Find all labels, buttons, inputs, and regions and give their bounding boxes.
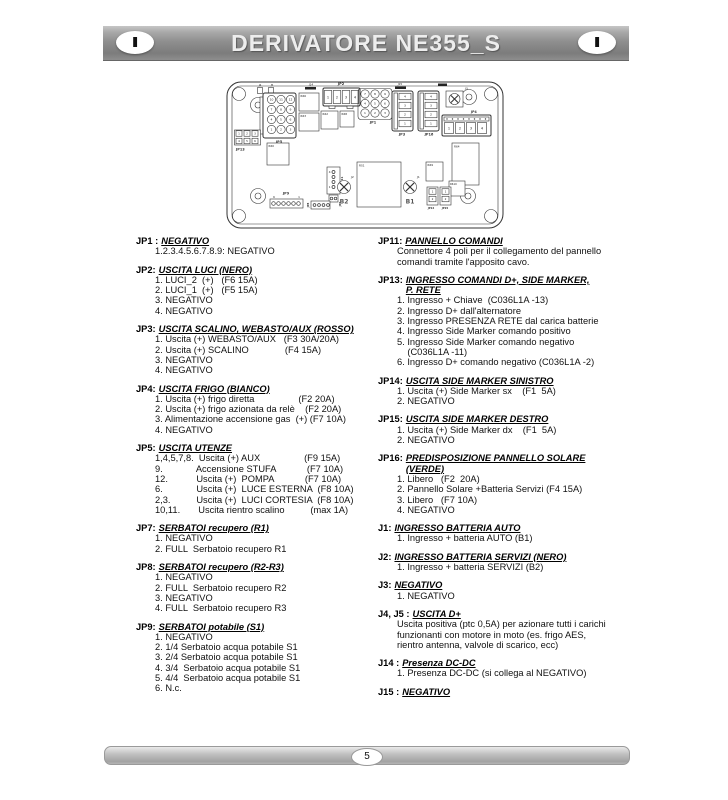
pin-list: 1. Presenza DC-DC (si collega al NEGATIV… <box>378 668 630 678</box>
pin-line: 5. Ingresso Side Marker comando negativo <box>378 337 630 347</box>
connector-title: USCITA SIDE MARKER DESTRO <box>406 414 549 424</box>
pin-line: 9. Accensione STUFA (F7 10A) <box>136 464 378 474</box>
relay-r60: R60 <box>267 143 289 165</box>
svg-text:JP4: JP4 <box>470 110 478 114</box>
pin-line: 3. Libero (F7 10A) <box>378 495 630 505</box>
svg-text:R610: R610 <box>450 182 457 186</box>
svg-text:9: 9 <box>384 92 386 96</box>
connector-id: JP1 : <box>136 236 158 246</box>
pin-line: 4. Ingresso Side Marker comando positivo <box>378 326 630 336</box>
footer-bar: 5 <box>104 746 630 765</box>
section-heading: JP2:USCITA LUCI (NERO) <box>136 265 378 275</box>
connector-section: JP7:SERBATOI recupero (R1) 1. NEGATIVO2.… <box>136 523 378 554</box>
svg-text:1: 1 <box>329 185 331 189</box>
pin-line: 2. Pannello Solare +Batteria Servizi (F4… <box>378 484 630 494</box>
connector-title-line: USCITA SIDE MARKER DESTRO <box>406 414 549 424</box>
svg-text:5: 5 <box>280 118 282 122</box>
section-heading: J1:INGRESSO BATTERIA AUTO <box>378 523 630 533</box>
svg-text:J3: J3 <box>464 87 468 91</box>
section-heading: JP14:USCITA SIDE MARKER SINISTRO <box>378 376 630 386</box>
section-heading: JP7:SERBATOI recupero (R1) <box>136 523 378 533</box>
pin-line: 6. Uscita (+) LUCE ESTERNA (F8 10A) <box>136 484 378 494</box>
svg-text:1: 1 <box>432 190 434 194</box>
svg-text:J15: J15 <box>397 82 403 86</box>
pin-line: 3. NEGATIVO <box>136 295 378 305</box>
svg-text:8: 8 <box>374 92 376 96</box>
connector-title: SERBATOI recupero (R2-R3) <box>159 562 284 572</box>
section-heading: J15 :NEGATIVO <box>378 687 630 697</box>
pin-line: 4. NEGATIVO <box>378 505 630 515</box>
relay-r68: R68 <box>340 111 354 127</box>
svg-text:R62: R62 <box>323 112 329 116</box>
pin-line: 1. NEGATIVO <box>136 533 378 543</box>
section-heading: JP5:USCITA UTENZE <box>136 443 378 453</box>
svg-text:6: 6 <box>273 195 275 199</box>
header-bar: I DERIVATORE NE355_S I <box>103 26 629 61</box>
svg-text:4: 4 <box>430 95 432 99</box>
svg-text:2: 2 <box>404 113 406 117</box>
svg-text:3: 3 <box>404 104 406 108</box>
pin-line: 4. 3/4 Serbatoio acqua potabile S1 <box>136 663 378 673</box>
svg-text:J14: J14 <box>308 83 314 87</box>
pin-line: 5. 4/4 Serbatoio acqua potabile S1 <box>136 673 378 683</box>
pin-line: 3. Ingresso PRESENZA RETE dal carica bat… <box>378 316 630 326</box>
svg-text:7: 7 <box>364 92 366 96</box>
svg-text:6: 6 <box>384 102 386 106</box>
pin-line: 4. NEGATIVO <box>136 306 378 316</box>
pin-line: 4. NEGATIVO <box>136 425 378 435</box>
pin-line: 3. Alimentazione accensione gas (+) (F7 … <box>136 414 378 424</box>
jp5-connector: 101112789456123 JP5 <box>260 93 296 144</box>
svg-text:5: 5 <box>374 102 376 106</box>
svg-text:J2: J2 <box>350 175 354 179</box>
section-heading: J3:NEGATIVO <box>378 580 630 590</box>
connector-id: J4, J5 : <box>378 609 410 619</box>
connector-section: J2:INGRESSO BATTERIA SERVIZI (NERO) 1. I… <box>378 552 630 573</box>
pin-line: 1.2.3.4.5.6.7.8.9: NEGATIVO <box>136 246 378 256</box>
pin-line: 3. 2/4 Serbatoio acqua potabile S1 <box>136 652 378 662</box>
svg-text:10: 10 <box>270 98 274 102</box>
pin-line: 6. Ingresso D+ comando negativo (C036L1A… <box>378 357 630 367</box>
section-heading: J14 :Presenza DC-DC <box>378 658 630 668</box>
svg-text:2: 2 <box>459 126 461 130</box>
relay-r69: R69 <box>426 162 443 181</box>
section-heading: JP1 :NEGATIVO <box>136 236 378 246</box>
page-number: 5 <box>364 751 370 762</box>
connector-title-line: INGRESSO BATTERIA SERVIZI (NERO) <box>394 552 566 562</box>
svg-text:R64: R64 <box>454 145 460 149</box>
connector-section: JP16:PREDISPOSIZIONE PANNELLO SOLARE(VER… <box>378 453 630 515</box>
section-heading: JP15:USCITA SIDE MARKER DESTRO <box>378 414 630 424</box>
svg-text:1: 1 <box>298 195 300 199</box>
pin-list: 1. Uscita (+) Side Marker sx (F1 5A)2. N… <box>378 386 630 407</box>
svg-text:1: 1 <box>327 95 329 99</box>
section-heading: JP3:USCITA SCALINO, WEBASTO/AUX (ROSSO) <box>136 324 378 334</box>
pin-list: 1. Uscita (+) WEBASTO/AUX (F3 30A/20A)2.… <box>136 334 378 375</box>
connector-title: USCITA SIDE MARKER SINISTRO <box>406 376 554 386</box>
pin-line: (C036L1A -11) <box>378 347 630 357</box>
pin-line: 12. Uscita (+) POMPA (F7 10A) <box>136 474 378 484</box>
svg-text:2: 2 <box>280 128 282 132</box>
connector-title-line: (VERDE) <box>406 464 586 474</box>
pin-list: 1. Ingresso + Chiave (C036L1A -13)2. Ing… <box>378 295 630 367</box>
connector-title: NEGATIVO <box>161 236 209 246</box>
connector-title: NEGATIVO <box>394 580 442 590</box>
svg-text:3: 3 <box>345 95 347 99</box>
connector-title-line: USCITA UTENZE <box>159 443 232 453</box>
relay-rs1: RS1 <box>357 162 401 207</box>
pin-list: 1. NEGATIVO <box>378 591 630 601</box>
pin-list: 1. Libero (F2 20A)2. Pannello Solare +Ba… <box>378 474 630 515</box>
svg-text:J5: J5 <box>270 83 274 87</box>
svg-text:6: 6 <box>254 139 256 143</box>
connector-title-line: NEGATIVO <box>161 236 209 246</box>
section-heading: JP8:SERBATOI recupero (R2-R3) <box>136 562 378 572</box>
svg-text:2: 2 <box>374 111 376 115</box>
svg-text:B1: B1 <box>406 199 415 206</box>
jp3-connector: 4321 JP3 <box>392 91 413 137</box>
pin-list: 1. NEGATIVO2. FULL Serbatoio recupero R1 <box>136 533 378 554</box>
document-page: I DERIVATORE NE355_S I J4 J5 <box>0 0 728 800</box>
connector-section: JP11:PANNELLO COMANDI Connettore 4 poli … <box>378 236 630 267</box>
connector-title: INGRESSO BATTERIA SERVIZI (NERO) <box>394 552 566 562</box>
pin-line: 1. Ingresso + Chiave (C036L1A -13) <box>378 295 630 305</box>
svg-text:R66: R66 <box>301 94 307 98</box>
pin-line: 2. 1/4 Serbatoio acqua potabile S1 <box>136 642 378 652</box>
connector-section: JP8:SERBATOI recupero (R2-R3) 1. NEGATIV… <box>136 562 378 613</box>
connector-section: JP1 :NEGATIVO 1.2.3.4.5.6.7.8.9: NEGATIV… <box>136 236 378 257</box>
connector-title: SERBATOI recupero (R1) <box>159 523 269 533</box>
pin-line: 1. Ingresso + batteria SERVIZI (B2) <box>378 562 630 572</box>
svg-text:2: 2 <box>246 132 248 136</box>
connector-title-line: Presenza DC-DC <box>402 658 475 668</box>
pin-line: 4. FULL Serbatoio recupero R3 <box>136 603 378 613</box>
pin-line: 1. Uscita (+) Side Marker dx (F1 5A) <box>378 425 630 435</box>
pin-line: 2. Uscita (+) SCALINO (F4 15A) <box>136 345 378 355</box>
relay-r66: R66 <box>299 93 319 111</box>
connector-id: JP13: <box>378 275 403 285</box>
connector-title: USCITA FRIGO (BIANCO) <box>159 384 270 394</box>
connector-section: J4, J5 :USCITA D+ Uscita positiva (ptc 0… <box>378 609 630 650</box>
svg-text:R69: R69 <box>428 163 434 167</box>
connector-id: J3: <box>378 580 391 590</box>
jp16-connector: 4321 JP16 <box>418 91 439 137</box>
pin-line: 2. NEGATIVO <box>378 396 630 406</box>
connector-section: JP13:INGRESSO COMANDI D+, SIDE MARKER,P.… <box>378 275 630 368</box>
svg-text:JP3: JP3 <box>398 133 406 137</box>
connector-id: J14 : <box>378 658 399 668</box>
svg-text:R60: R60 <box>269 144 275 148</box>
connector-title: INGRESSO BATTERIA AUTO <box>394 523 520 533</box>
pin-list: 1. NEGATIVO2. FULL Serbatoio recupero R2… <box>136 572 378 613</box>
pin-line: 1. Uscita (+) frigo diretta (F2 20A) <box>136 394 378 404</box>
svg-text:2: 2 <box>336 95 338 99</box>
pin-line: 1. Uscita (+) Side Marker sx (F1 5A) <box>378 386 630 396</box>
svg-text:1: 1 <box>448 126 450 130</box>
language-badge-right-label: I <box>593 34 601 51</box>
section-heading: J4, J5 :USCITA D+ <box>378 609 630 619</box>
section-heading: JP16:PREDISPOSIZIONE PANNELLO SOLARE(VER… <box>378 453 630 474</box>
connector-title: Presenza DC-DC <box>402 658 475 668</box>
svg-text:1: 1 <box>271 128 273 132</box>
section-heading: JP13:INGRESSO COMANDI D+, SIDE MARKER,P.… <box>378 275 630 296</box>
connector-title: PREDISPOSIZIONE PANNELLO SOLARE(VERDE) <box>406 453 586 474</box>
svg-text:JP15: JP15 <box>441 206 449 210</box>
pin-line: funzionanti con motore in moto (es. frig… <box>378 630 630 640</box>
pin-line: 1. Libero (F2 20A) <box>378 474 630 484</box>
pin-line: 1. Presenza DC-DC (si collega al NEGATIV… <box>378 668 630 678</box>
connector-section: JP15:USCITA SIDE MARKER DESTRO 1. Uscita… <box>378 414 630 445</box>
connector-title: USCITA D+ <box>413 609 461 619</box>
pin-line: 1. LUCI_2 (+) (F6 15A) <box>136 275 378 285</box>
connector-id: JP5: <box>136 443 156 453</box>
svg-text:3: 3 <box>384 111 386 115</box>
pin-list: 1. Uscita (+) Side Marker dx (F1 5A)2. N… <box>378 425 630 446</box>
svg-text:8: 8 <box>280 108 282 112</box>
pin-list: 1. Ingresso + batteria SERVIZI (B2) <box>378 562 630 572</box>
svg-text:B2: B2 <box>340 199 349 206</box>
svg-text:3: 3 <box>470 126 472 130</box>
pin-list: Uscita positiva (ptc 0,5A) per azionare … <box>378 619 630 650</box>
svg-text:RS1: RS1 <box>359 164 365 168</box>
pin-line: 2. LUCI_1 (+) (F5 15A) <box>136 285 378 295</box>
pin-line: 1. NEGATIVO <box>136 572 378 582</box>
svg-text:4: 4 <box>364 102 366 106</box>
pin-line: 2,3. Uscita (+) LUCI CORTESIA (F8 10A) <box>136 495 378 505</box>
svg-text:2: 2 <box>445 197 447 201</box>
connector-title: NEGATIVO <box>402 687 450 697</box>
svg-text:JP8: JP8 <box>306 202 310 208</box>
svg-text:2: 2 <box>430 113 432 117</box>
connector-section: JP4:USCITA FRIGO (BIANCO) 1. Uscita (+) … <box>136 384 378 435</box>
svg-text:1: 1 <box>404 122 406 126</box>
connector-section: JP14:USCITA SIDE MARKER SINISTRO 1. Usci… <box>378 376 630 407</box>
connector-id: JP7: <box>136 523 156 533</box>
svg-text:R63: R63 <box>301 114 307 118</box>
connector-id: J15 : <box>378 687 399 697</box>
connector-id: JP14: <box>378 376 403 386</box>
connector-title-line: INGRESSO BATTERIA AUTO <box>394 523 520 533</box>
connector-title: SERBATOI potabile (S1) <box>159 622 265 632</box>
svg-text:JP1: JP1 <box>369 121 377 125</box>
connector-title: USCITA UTENZE <box>159 443 232 453</box>
pin-line: 6. N.c. <box>136 683 378 693</box>
pin-line: 3. NEGATIVO <box>136 355 378 365</box>
svg-text:1: 1 <box>364 111 366 115</box>
language-badge-left: I <box>116 31 154 54</box>
pin-line: 3. NEGATIVO <box>136 593 378 603</box>
connector-title-line: USCITA SCALINO, WEBASTO/AUX (ROSSO) <box>159 324 354 334</box>
top-right-jumper <box>438 84 447 87</box>
pin-list: 1. Ingresso + batteria AUTO (B1) <box>378 533 630 543</box>
pin-list: Connettore 4 poli per il collegamento de… <box>378 246 630 267</box>
connector-id: JP9: <box>136 622 156 632</box>
pin-line: 1,4,5,7,8. Uscita (+) AUX (F9 15A) <box>136 453 378 463</box>
connector-title: USCITA SCALINO, WEBASTO/AUX (ROSSO) <box>159 324 354 334</box>
pcb-diagram: J4 J5 101112789456123 JP5 123456 JP13 R6… <box>225 80 505 230</box>
pin-line: 4. NEGATIVO <box>136 365 378 375</box>
connector-id: J2: <box>378 552 391 562</box>
connector-title-line: NEGATIVO <box>402 687 450 697</box>
pin-line: 2. Uscita (+) frigo azionata da relè (F2… <box>136 404 378 414</box>
svg-text:J4: J4 <box>258 83 262 87</box>
svg-text:1: 1 <box>238 132 240 136</box>
pin-list: 1.2.3.4.5.6.7.8.9: NEGATIVO <box>136 246 378 256</box>
connector-section: J3:NEGATIVO 1. NEGATIVO <box>378 580 630 601</box>
section-heading: J2:INGRESSO BATTERIA SERVIZI (NERO) <box>378 552 630 562</box>
svg-text:J1: J1 <box>416 175 420 179</box>
connector-id: J1: <box>378 523 391 533</box>
connector-id: JP2: <box>136 265 156 275</box>
connector-title-line: SERBATOI recupero (R1) <box>159 523 269 533</box>
svg-text:JP14: JP14 <box>427 206 435 210</box>
relay-r62: R62 <box>321 111 338 129</box>
svg-text:12: 12 <box>289 98 293 102</box>
section-heading: JP9:SERBATOI potabile (S1) <box>136 622 378 632</box>
connector-title: INGRESSO COMANDI D+, SIDE MARKER,P. RETE <box>406 275 590 296</box>
pin-list: 1. LUCI_2 (+) (F6 15A)2. LUCI_1 (+) (F5 … <box>136 275 378 316</box>
pin-list: 1,4,5,7,8. Uscita (+) AUX (F9 15A)9. Acc… <box>136 453 378 515</box>
pin-line: 2. FULL Serbatoio recupero R2 <box>136 583 378 593</box>
connector-section: J15 :NEGATIVO <box>378 687 630 697</box>
relay-r610: R610 <box>449 181 465 196</box>
connector-descriptions: JP1 :NEGATIVO 1.2.3.4.5.6.7.8.9: NEGATIV… <box>136 236 630 705</box>
svg-text:4: 4 <box>404 95 406 99</box>
svg-text:R68: R68 <box>342 112 348 116</box>
pin-list: 1. Uscita (+) frigo diretta (F2 20A)2. U… <box>136 394 378 435</box>
connector-section: JP5:USCITA UTENZE 1,4,5,7,8. Uscita (+) … <box>136 443 378 515</box>
connector-id: JP11: <box>378 236 402 246</box>
svg-text:6: 6 <box>290 118 292 122</box>
svg-text:3: 3 <box>290 128 292 132</box>
svg-text:3: 3 <box>254 132 256 136</box>
connector-id: JP16: <box>378 453 403 463</box>
connector-title-line: USCITA LUCI (NERO) <box>159 265 252 275</box>
connector-title: USCITA LUCI (NERO) <box>159 265 252 275</box>
connector-title-line: USCITA D+ <box>413 609 461 619</box>
connector-title-line: SERBATOI potabile (S1) <box>159 622 265 632</box>
svg-text:1: 1 <box>445 190 447 194</box>
connector-title-line: SERBATOI recupero (R2-R3) <box>159 562 284 572</box>
page-title: DERIVATORE NE355_S <box>103 30 629 57</box>
connector-title-line: PANNELLO COMANDI <box>405 236 502 246</box>
section-heading: JP4:USCITA FRIGO (BIANCO) <box>136 384 378 394</box>
language-badge-left-label: I <box>131 34 139 51</box>
pin-line: 1. Ingresso + batteria AUTO (B1) <box>378 533 630 543</box>
pin-line: 1. NEGATIVO <box>136 632 378 642</box>
svg-text:2: 2 <box>432 197 434 201</box>
connector-section: J14 :Presenza DC-DC 1. Presenza DC-DC (s… <box>378 658 630 679</box>
connector-id: JP15: <box>378 414 403 424</box>
pin-list: 1. NEGATIVO2. 1/4 Serbatoio acqua potabi… <box>136 632 378 694</box>
svg-text:1: 1 <box>430 122 432 126</box>
svg-text:JP16: JP16 <box>424 133 434 137</box>
svg-text:JP13: JP13 <box>235 148 245 152</box>
svg-text:JP9: JP9 <box>282 192 290 196</box>
connector-title-line: USCITA FRIGO (BIANCO) <box>159 384 270 394</box>
connector-section: JP2:USCITA LUCI (NERO) 1. LUCI_2 (+) (F6… <box>136 265 378 316</box>
relay-r64: R64 <box>452 143 479 185</box>
connector-title-line: NEGATIVO <box>394 580 442 590</box>
right-column: JP11:PANNELLO COMANDI Connettore 4 poli … <box>378 236 630 705</box>
pin-line: 2. Ingresso D+ dall'alternatore <box>378 306 630 316</box>
left-column: JP1 :NEGATIVO 1.2.3.4.5.6.7.8.9: NEGATIV… <box>136 236 378 705</box>
connector-section: JP9:SERBATOI potabile (S1) 1. NEGATIVO2.… <box>136 622 378 694</box>
svg-text:5: 5 <box>246 139 248 143</box>
pin-line: 2. NEGATIVO <box>378 435 630 445</box>
pin-line: 1. NEGATIVO <box>378 591 630 601</box>
svg-text:7: 7 <box>271 108 273 112</box>
pin-line: 2. FULL Serbatoio recupero R1 <box>136 544 378 554</box>
section-heading: JP11:PANNELLO COMANDI <box>378 236 630 246</box>
svg-text:JP2: JP2 <box>337 82 345 86</box>
connector-id: JP8: <box>136 562 156 572</box>
connector-id: JP4: <box>136 384 156 394</box>
connector-title-line: P. RETE <box>406 285 590 295</box>
pin-line: Uscita positiva (ptc 0,5A) per azionare … <box>378 619 630 629</box>
pin-line: comandi tramite l'apposito cavo. <box>378 257 630 267</box>
pin-line: Connettore 4 poli per il collegamento de… <box>378 246 630 256</box>
page-number-badge: 5 <box>351 748 383 766</box>
connector-id: JP3: <box>136 324 156 334</box>
connector-title-line: PREDISPOSIZIONE PANNELLO SOLARE <box>406 453 586 463</box>
svg-text:3: 3 <box>430 104 432 108</box>
pin-line: 10,11. Uscita rientro scalino (max 1A) <box>136 505 378 515</box>
svg-text:4: 4 <box>238 139 240 143</box>
relay-r63: R63 <box>299 113 319 131</box>
pin-line: rientro antenna, valvole di scarico, ecc… <box>378 640 630 650</box>
svg-text:11: 11 <box>279 98 283 102</box>
connector-title-line: USCITA SIDE MARKER SINISTRO <box>406 376 554 386</box>
language-badge-right: I <box>578 31 616 54</box>
svg-text:4: 4 <box>271 118 273 122</box>
connector-title-line: INGRESSO COMANDI D+, SIDE MARKER, <box>406 275 590 285</box>
connector-section: JP3:USCITA SCALINO, WEBASTO/AUX (ROSSO) … <box>136 324 378 375</box>
svg-text:9: 9 <box>290 108 292 112</box>
connector-title: PANNELLO COMANDI <box>405 236 502 246</box>
pin-line: 1. Uscita (+) WEBASTO/AUX (F3 30A/20A) <box>136 334 378 344</box>
svg-text:4: 4 <box>329 170 331 174</box>
connector-section: J1:INGRESSO BATTERIA AUTO 1. Ingresso + … <box>378 523 630 544</box>
